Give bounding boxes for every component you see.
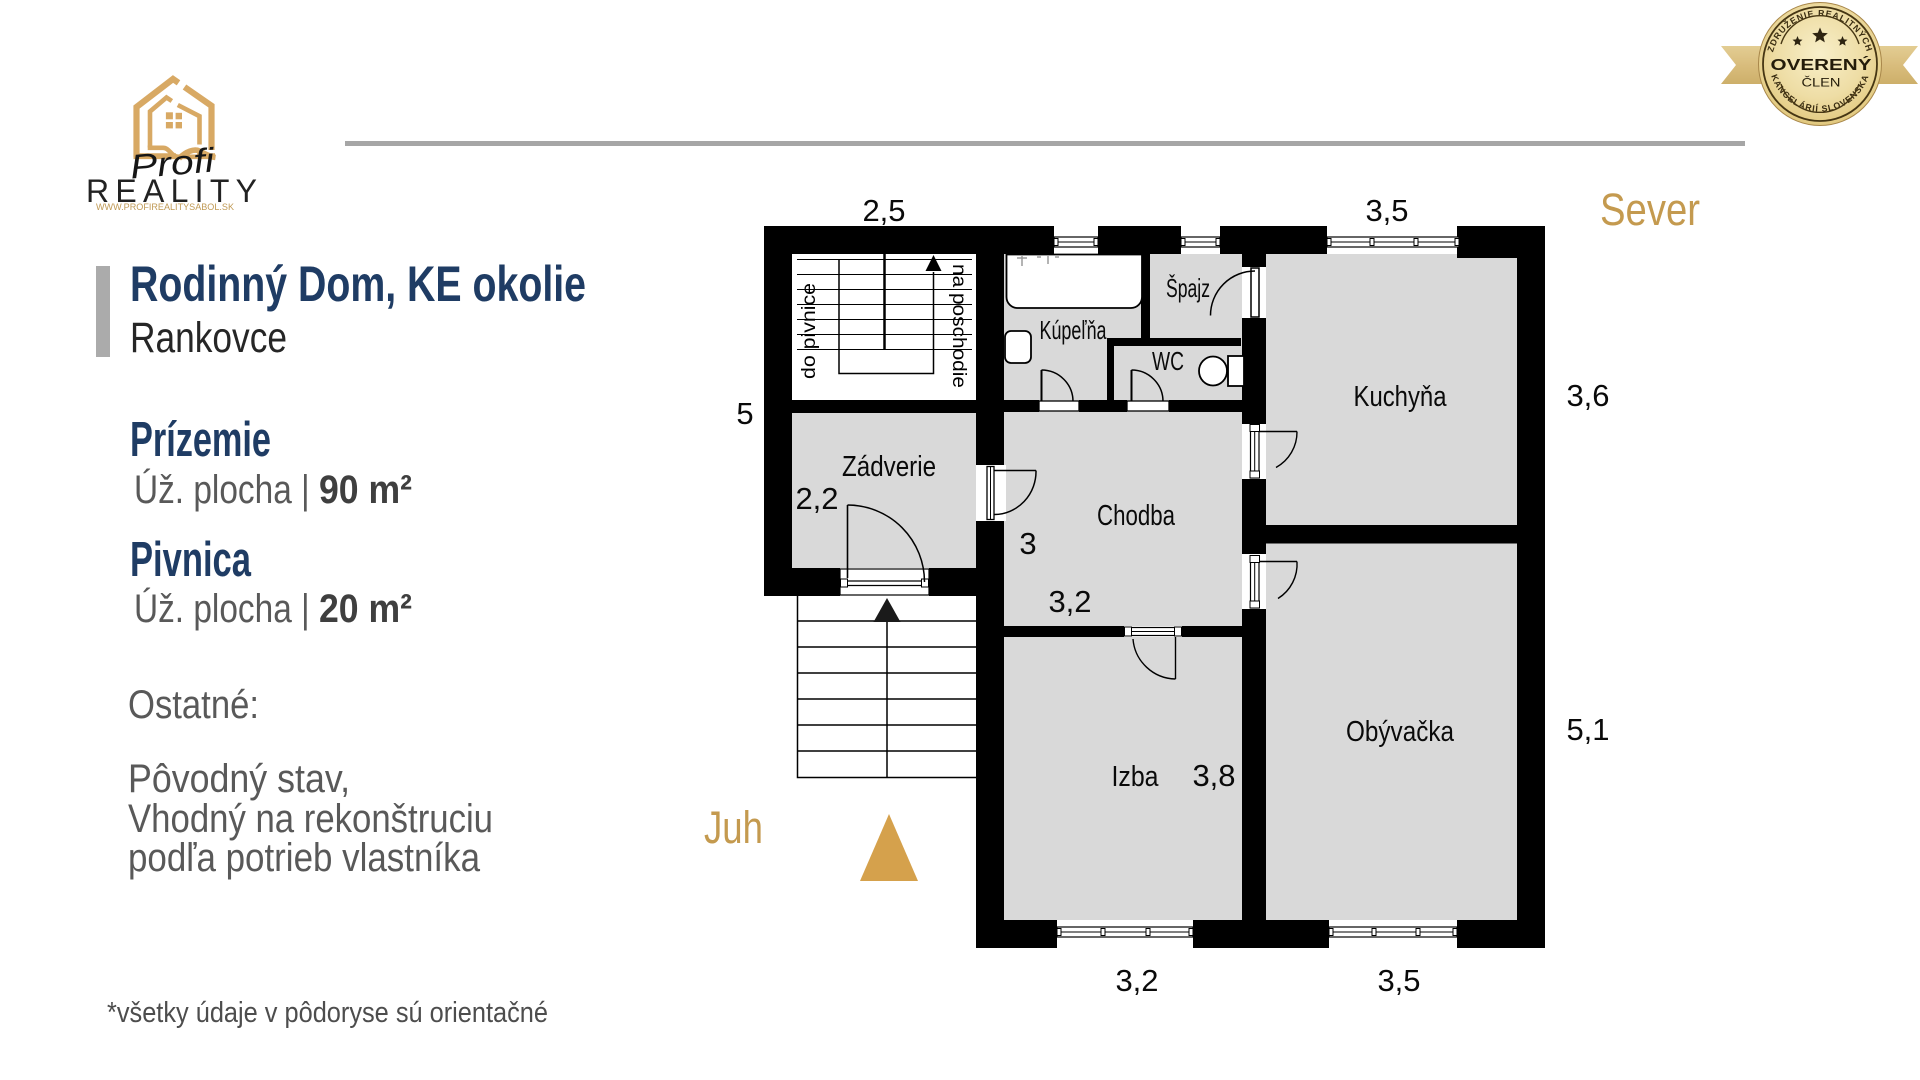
svg-text:Izba: Izba	[1112, 761, 1160, 793]
svg-text:do pivnice: do pivnice	[799, 283, 820, 379]
svg-text:Pivnica: Pivnica	[130, 533, 252, 587]
svg-text:Rodinný Dom, KE okolie: Rodinný Dom, KE okolie	[130, 256, 586, 312]
svg-text:3,8: 3,8	[1192, 758, 1235, 793]
svg-text:ČLEN: ČLEN	[1802, 75, 1841, 90]
svg-text:Kuchyňa: Kuchyňa	[1354, 381, 1448, 413]
svg-text:Juh: Juh	[704, 802, 763, 853]
svg-text:Kúpeľňa: Kúpeľňa	[1040, 315, 1107, 345]
svg-text:5,1: 5,1	[1566, 712, 1609, 747]
svg-text:5: 5	[736, 396, 753, 431]
svg-text:2,5: 2,5	[862, 193, 905, 228]
svg-text:Chodba: Chodba	[1097, 500, 1176, 532]
svg-text:Rankovce: Rankovce	[130, 314, 287, 362]
svg-text:Pôvodný stav,: Pôvodný stav,	[128, 757, 350, 801]
svg-text:3,2: 3,2	[1048, 584, 1091, 619]
svg-text:podľa potrieb vlastníka: podľa potrieb vlastníka	[128, 836, 481, 880]
svg-text:3,2: 3,2	[1115, 963, 1158, 998]
svg-text:Zádverie: Zádverie	[842, 451, 936, 483]
svg-text:WC: WC	[1152, 346, 1184, 376]
svg-text:*všetky údaje v pôdoryse sú or: *všetky údaje v pôdoryse sú orientačné	[107, 997, 548, 1029]
svg-text:Ostatné:: Ostatné:	[128, 683, 259, 727]
svg-text:2,2: 2,2	[795, 481, 838, 516]
svg-text:3,5: 3,5	[1365, 193, 1408, 228]
svg-text:Prízemie: Prízemie	[130, 413, 271, 467]
svg-text:Obývačka: Obývačka	[1346, 716, 1455, 748]
svg-text:Vhodný na rekonštruciu: Vhodný na rekonštruciu	[128, 797, 493, 841]
svg-text:Špajz: Špajz	[1166, 273, 1210, 303]
svg-text:3,5: 3,5	[1377, 963, 1420, 998]
svg-text:Úž. plocha | 20 m²: Úž. plocha | 20 m²	[134, 586, 412, 631]
svg-text:WWW.PROFIREALITYSABOL.SK: WWW.PROFIREALITYSABOL.SK	[96, 202, 234, 212]
svg-text:3,6: 3,6	[1566, 378, 1609, 413]
svg-text:Úž. plocha | 90 m²: Úž. plocha | 90 m²	[134, 467, 412, 512]
svg-text:3: 3	[1019, 526, 1036, 561]
svg-text:Sever: Sever	[1600, 184, 1700, 235]
svg-text:na poschodie: na poschodie	[948, 264, 969, 388]
svg-text:OVERENÝ: OVERENÝ	[1771, 55, 1872, 74]
